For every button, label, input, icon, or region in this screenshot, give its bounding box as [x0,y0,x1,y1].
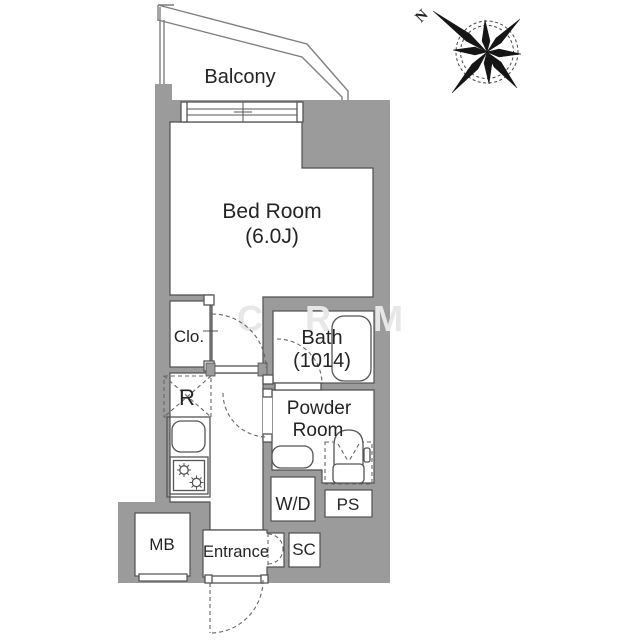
burner-icon [177,463,191,477]
compass-rose: N [413,7,521,93]
refrigerator-label: R [179,385,195,410]
window-jamb-right [297,102,303,122]
kitchen-sink-icon [172,421,205,452]
bedroom-label: Bed Room [222,200,321,223]
bath-size-label: (1014) [293,350,351,372]
bath-label: Bath [301,327,342,349]
powder-room-label-line1: Powder [287,398,352,419]
meter-box-sill [139,574,187,581]
bedroom-size-label: (6.0J) [245,225,299,248]
shoe-cabinet-label: SC [292,540,316,559]
balcony-end-post [158,5,164,84]
window-jamb-left [181,102,187,122]
entrance-threshold [210,576,263,583]
meter-box-label: MB [149,535,175,554]
balcony-inner-rail [158,20,342,101]
entrance-door-swing-arc [210,580,263,633]
pipe-shaft-label: PS [337,495,360,514]
svg-text:C: C [237,298,263,339]
washbasin-icon [272,446,313,468]
balcony: Balcony [158,5,348,101]
bath-door-sill [275,383,321,390]
north-needle [433,11,487,52]
north-label: N [413,7,432,26]
floor-plan: Balcony C R M [0,0,640,640]
burner-icon [190,476,204,490]
powder-room-label-line2: Room [293,420,344,441]
entrance-door [205,575,268,633]
balcony-label: Balcony [204,66,275,88]
closet-label: Clo. [174,327,204,346]
entrance-label: Entrance [203,543,269,561]
window-icon [181,102,303,122]
svg-text:M: M [373,298,403,339]
washer-dryer-label: W/D [276,494,311,514]
floor-plan-page: Balcony C R M [0,0,640,640]
